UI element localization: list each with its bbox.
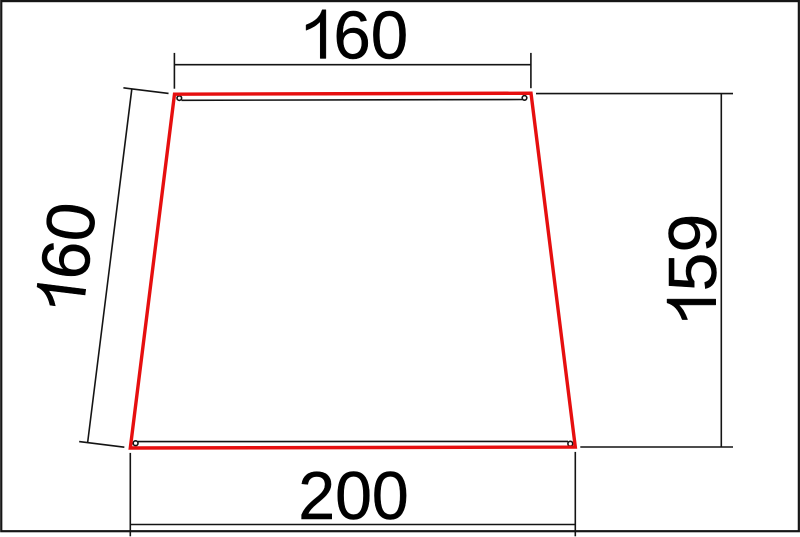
svg-text:60: 60	[333, 0, 408, 74]
svg-text:60: 60	[27, 198, 111, 283]
svg-text:200: 200	[298, 458, 408, 534]
svg-text:59: 59	[655, 214, 731, 292]
